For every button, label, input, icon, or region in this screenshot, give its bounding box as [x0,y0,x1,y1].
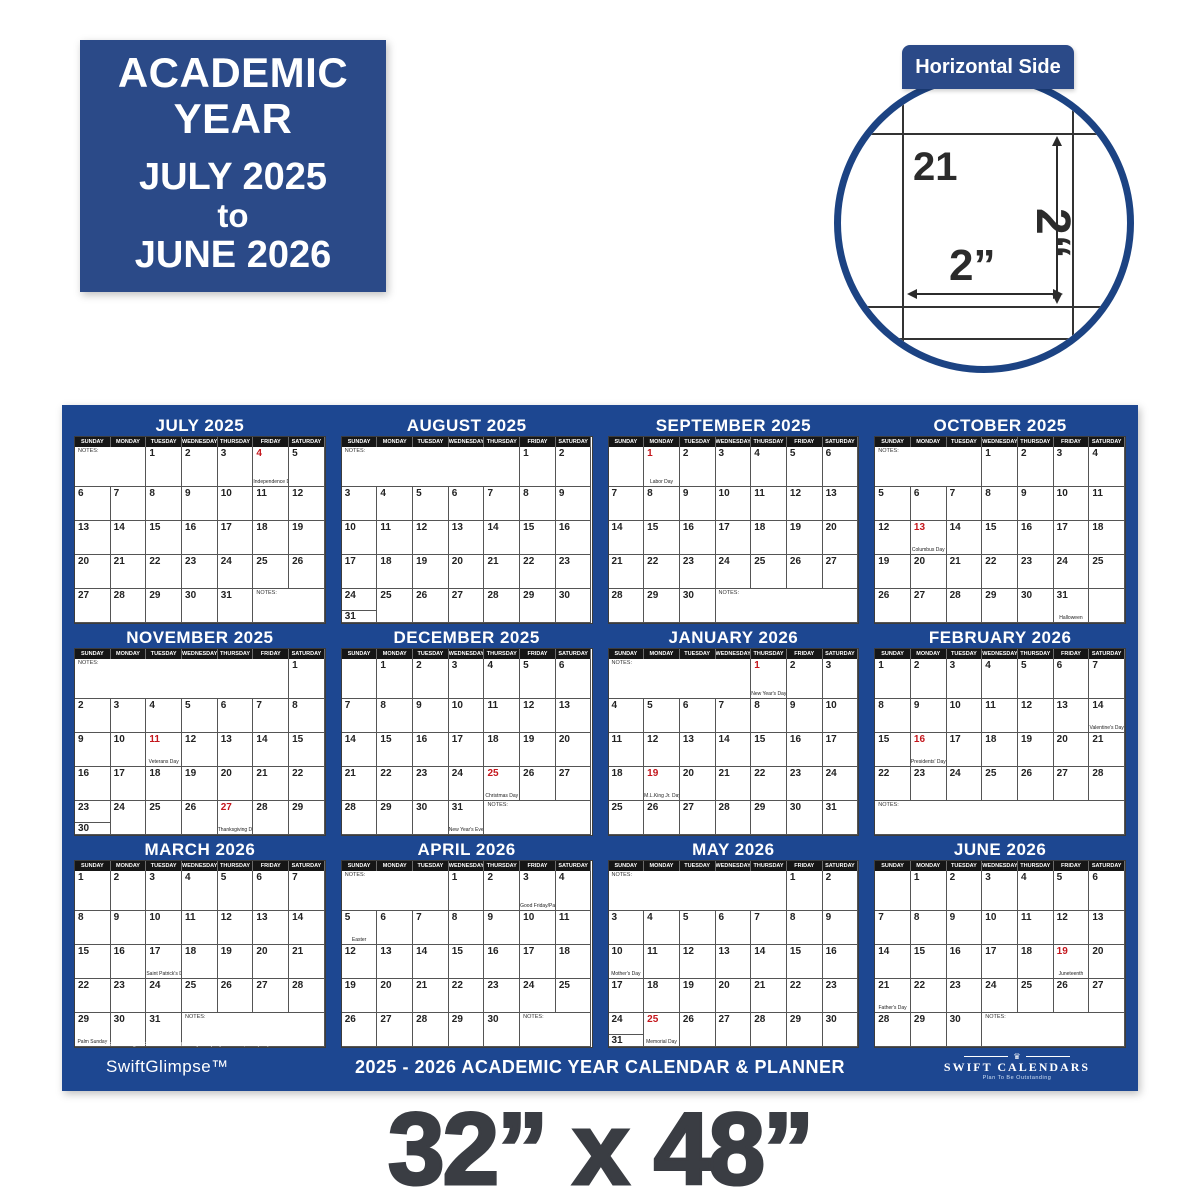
inset-width-label: 2” [949,241,995,290]
day-number: 24 [523,980,555,991]
day-cell: 20 [680,767,716,801]
day-header: FRIDAY [520,437,556,447]
day-cell: 21 [609,555,645,589]
day-number: 20 [914,556,946,567]
month-grid: SUNDAYMONDAYTUESDAYWEDNESDAYTHURSDAYFRID… [608,860,860,1048]
day-header: FRIDAY [253,437,289,447]
day-cell: 2 [182,447,218,487]
day-number: 15 [149,522,181,533]
day-cell: 6 [218,699,254,733]
day-number: 30 [950,1014,982,1025]
day-cell: 16 [75,767,111,801]
day-cell: 21 [1089,733,1125,767]
day-cell: 14 [289,911,325,945]
month-grid: SUNDAYMONDAYTUESDAYWEDNESDAYTHURSDAYFRID… [874,436,1126,624]
holiday-label: Halloween [1054,615,1089,621]
holiday-label: Labor Day [644,479,679,485]
day-number: 21 [487,556,519,567]
holiday-label: Easter [342,937,377,943]
day-number: 15 [878,734,910,745]
day-cell: 3 [146,871,182,911]
day-cell: 28 [1089,767,1125,801]
day-cell: 23 [947,979,983,1013]
day-number: 21 [345,768,377,779]
day-number: 4 [185,872,217,883]
day-header: THURSDAY [1018,437,1054,447]
day-header: THURSDAY [218,861,254,871]
day-number: 12 [683,946,715,957]
month-grid: SUNDAYMONDAYTUESDAYWEDNESDAYTHURSDAYFRID… [74,436,326,624]
day-cell: 11 [253,487,289,521]
day-cell: 16 [413,733,449,767]
day-number: 4 [256,448,288,459]
day-number: 18 [985,734,1017,745]
day-cell: 2 [1018,447,1054,487]
day-number: 5 [221,872,253,883]
day-number: 9 [950,912,982,923]
day-number: 27 [559,768,591,779]
day-header: WEDNESDAY [182,861,218,871]
month-grid: SUNDAYMONDAYTUESDAYWEDNESDAYTHURSDAYFRID… [341,648,593,836]
day-number: 20 [559,734,591,745]
notes-cell: NOTES: [875,447,982,487]
day-cell: 6 [1054,659,1090,699]
day-number: 17 [523,946,555,957]
day-cell: 18 [556,945,592,979]
day-cell: 19M.L.King Jr. Day [644,767,680,801]
day-number: 14 [1092,700,1124,711]
day-number: 7 [256,700,288,711]
day-number: 7 [487,488,519,499]
day-header: SUNDAY [875,861,911,871]
day-cell: 15 [751,733,787,767]
day-cell: 20 [911,555,947,589]
day-number: 25 [985,768,1017,779]
day-number: 27 [719,1014,751,1025]
day-cell: 13 [253,911,289,945]
day-cell: 15 [787,945,823,979]
day-cell: 14 [484,521,520,555]
day-number: 27 [452,590,484,601]
day-cell: 13 [449,521,485,555]
day-cell: 12 [342,945,378,979]
notes-label: NOTES: [523,1014,590,1020]
day-cell: 4 [484,659,520,699]
day-cell: 26 [787,555,823,589]
day-cell: 7 [289,871,325,911]
day-cell: 11 [1018,911,1054,945]
day-number: 3 [114,700,146,711]
day-number: 20 [719,980,751,991]
day-cell: 8 [751,699,787,733]
day-number: 24 [221,556,253,567]
holiday-label: M.L.King Jr. Day [644,793,679,799]
day-cell: 9 [556,487,592,521]
day-cell: 11 [556,911,592,945]
day-cell: 22 [911,979,947,1013]
month-title: DECEMBER 2025 [341,628,593,648]
day-cell: 13 [716,945,752,979]
day-number: 22 [380,768,412,779]
day-header: WEDNESDAY [182,649,218,659]
day-number: 27 [78,590,110,601]
day-number: 1 [452,872,484,883]
notes-cell: NOTES: [342,447,520,487]
day-cell: 3 [609,911,645,945]
day-cell: 7 [609,487,645,521]
day-cell: 4 [556,871,592,911]
day-cell: 16 [947,945,983,979]
day-cell: 28 [289,979,325,1013]
day-number: 20 [683,768,715,779]
day-number: 14 [487,522,519,533]
day-number: 29 [647,590,679,601]
day-cell: 5 [680,911,716,945]
day-number: 21 [612,556,644,567]
day-number: 20 [78,556,110,567]
day-cell: 30 [1018,589,1054,623]
day-number: 1 [914,872,946,883]
day-number: 1 [292,660,324,671]
day-cell: 8 [289,699,325,733]
day-number: 31 [149,1014,181,1025]
day-number: 31 [826,802,858,813]
day-header: TUESDAY [947,437,983,447]
day-number: 8 [985,488,1017,499]
day-number: 14 [719,734,751,745]
day-header: THURSDAY [751,437,787,447]
day-number: 6 [452,488,484,499]
day-number: 7 [114,488,146,499]
day-cell: 4 [377,487,413,521]
day-header: SUNDAY [609,649,645,659]
day-number: 10 [950,700,982,711]
day-cell: 10 [823,699,859,733]
day-number: 4 [149,700,181,711]
day-cell: 25 [982,767,1018,801]
day-cell: 11 [377,521,413,555]
day-cell: 29 [377,801,413,835]
day-cell: 26 [1054,979,1090,1013]
day-number: 13 [256,912,288,923]
month-title: JANUARY 2026 [608,628,860,648]
day-cell: 6 [253,871,289,911]
day-number: 26 [416,590,448,601]
day-header: TUESDAY [413,861,449,871]
day-cell: 8 [644,487,680,521]
day-number: 6 [256,872,288,883]
day-cell: 4 [146,699,182,733]
month-february-2026: FEBRUARY 2026SUNDAYMONDAYTUESDAYWEDNESDA… [874,628,1126,836]
day-cell: 13 [556,699,592,733]
holiday-label: Presidents' Day [911,759,946,765]
holiday-label: New Year's Day [751,691,786,697]
day-number: 30 [487,1014,519,1025]
day-cell: 28 [751,1013,787,1047]
day-number: 30 [416,802,448,813]
day-number: 9 [78,734,110,745]
day-cell: 15 [644,521,680,555]
month-grid: SUNDAYMONDAYTUESDAYWEDNESDAYTHURSDAYFRID… [874,648,1126,836]
day-number: 25 [149,802,181,813]
day-number: 25 [256,556,288,567]
day-cell: 10 [146,911,182,945]
empty-cell [342,659,378,699]
day-cell: 11 [182,911,218,945]
day-cell: 2431 [609,1013,645,1047]
day-cell: 16Presidents' Day [911,733,947,767]
day-number: 15 [78,946,110,957]
overflow-day: 31 [609,1034,644,1046]
day-cell: 2 [111,871,147,911]
day-number: 12 [790,488,822,499]
day-header: THURSDAY [218,649,254,659]
swift-calendars-name: SWIFT CALENDARS [922,1061,1112,1075]
day-number: 21 [114,556,146,567]
day-number: 7 [719,700,751,711]
day-number: 9 [487,912,519,923]
day-number: 21 [719,768,751,779]
day-header: TUESDAY [146,437,182,447]
day-cell: 13 [680,733,716,767]
day-number: 11 [985,700,1017,711]
day-number: 25 [185,980,217,991]
day-cell: 9 [111,911,147,945]
day-number: 2 [78,700,110,711]
day-cell: 6 [680,699,716,733]
day-header: THURSDAY [1018,861,1054,871]
day-number: 4 [380,488,412,499]
day-number: 20 [1092,946,1124,957]
day-number: 11 [149,734,181,745]
day-cell: 27 [680,801,716,835]
day-cell: 17 [982,945,1018,979]
day-cell: 13Columbus Day [911,521,947,555]
day-number: 27 [380,1014,412,1025]
day-header: THURSDAY [1018,649,1054,659]
day-cell: 14 [875,945,911,979]
holiday-label: New Year's Eve [449,827,484,833]
day-cell: 14Valentine's Day [1089,699,1125,733]
day-header: THURSDAY [484,437,520,447]
day-cell: 12 [413,521,449,555]
day-cell: 23 [413,767,449,801]
day-header: TUESDAY [146,861,182,871]
day-number: 7 [416,912,448,923]
day-cell: 30 [680,589,716,623]
day-cell: 16 [1018,521,1054,555]
day-cell: 14 [253,733,289,767]
day-cell: 27 [911,589,947,623]
day-header: WEDNESDAY [982,649,1018,659]
day-number: 4 [754,448,786,459]
day-cell: 7 [484,487,520,521]
day-cell: 17 [823,733,859,767]
day-cell: 30 [947,1013,983,1047]
day-cell: 16 [680,521,716,555]
day-number: 13 [380,946,412,957]
day-number: 27 [683,802,715,813]
day-header: TUESDAY [413,437,449,447]
day-header: FRIDAY [253,649,289,659]
day-number: 15 [985,522,1017,533]
day-cell: 10Mother's Day [609,945,645,979]
day-cell: 26 [182,801,218,835]
day-cell: 20 [1089,945,1125,979]
day-header: SATURDAY [1089,437,1125,447]
day-number: 16 [114,946,146,957]
day-number: 5 [416,488,448,499]
day-cell: 7 [342,699,378,733]
day-cell: 11 [1089,487,1125,521]
day-cell: 19 [218,945,254,979]
day-number: 1 [790,872,822,883]
day-cell: 5 [644,699,680,733]
day-number: 10 [719,488,751,499]
day-cell: 6 [75,487,111,521]
day-number: 16 [1021,522,1053,533]
holiday-label: Memorial Day [644,1039,679,1045]
day-cell: 15 [289,733,325,767]
month-grid: SUNDAYMONDAYTUESDAYWEDNESDAYTHURSDAYFRID… [608,436,860,624]
copyright-text: © 2024 All Rights Reserved - Reliable Wa… [104,1042,291,1048]
day-number: 24 [114,802,146,813]
day-number: 24 [345,590,377,601]
day-number: 30 [790,802,822,813]
day-cell: 22 [875,767,911,801]
day-number: 19 [221,946,253,957]
day-number: 3 [523,872,555,883]
day-number: 21 [292,946,324,957]
day-number: 8 [790,912,822,923]
day-cell: 22 [520,555,556,589]
day-cell: 10 [342,521,378,555]
day-number: 6 [78,488,110,499]
day-cell: 11 [982,699,1018,733]
day-cell: 10 [716,487,752,521]
day-cell: 3 [947,659,983,699]
day-cell: 23 [787,767,823,801]
notes-cell: NOTES: [875,801,1125,835]
day-number: 27 [1092,980,1124,991]
day-number: 2 [790,660,822,671]
day-number: 2 [487,872,519,883]
day-header: SUNDAY [609,437,645,447]
day-cell: 7 [716,699,752,733]
day-number: 18 [487,734,519,745]
day-number: 28 [878,1014,910,1025]
day-cell: 8 [377,699,413,733]
day-cell: 20 [1054,733,1090,767]
day-header: FRIDAY [787,861,823,871]
month-title: MAY 2026 [608,840,860,860]
day-cell: 29 [146,589,182,623]
day-cell: 29 [449,1013,485,1047]
day-header: SATURDAY [556,437,592,447]
day-header: SATURDAY [1089,861,1125,871]
month-october-2025: OCTOBER 2025SUNDAYMONDAYTUESDAYWEDNESDAY… [874,416,1126,624]
month-title: FEBRUARY 2026 [874,628,1126,648]
day-cell: 13 [75,521,111,555]
day-cell: 9 [75,733,111,767]
day-cell: 15 [520,521,556,555]
day-number: 17 [345,556,377,567]
day-cell: 29 [289,801,325,835]
day-number: 9 [826,912,858,923]
day-header: WEDNESDAY [716,437,752,447]
day-number: 12 [185,734,217,745]
day-cell: 20 [716,979,752,1013]
day-number: 18 [647,980,679,991]
day-number: 14 [416,946,448,957]
month-title: JUNE 2026 [874,840,1126,860]
day-number: 21 [950,556,982,567]
day-number: 8 [380,700,412,711]
day-cell: 22 [449,979,485,1013]
day-header: TUESDAY [680,649,716,659]
day-number: 28 [487,590,519,601]
day-cell: 21Father's Day [875,979,911,1013]
day-cell: 15 [911,945,947,979]
day-number: 24 [1057,556,1089,567]
day-header: SATURDAY [289,437,325,447]
day-number: 20 [256,946,288,957]
day-cell: 14 [751,945,787,979]
day-cell: 24 [982,979,1018,1013]
day-header: SATURDAY [823,861,859,871]
notes-label: NOTES: [345,448,519,454]
day-cell: 8 [787,911,823,945]
day-number: 12 [221,912,253,923]
day-header: MONDAY [911,437,947,447]
day-number: 23 [487,980,519,991]
day-number: 13 [559,700,591,711]
day-cell: 22 [377,767,413,801]
day-cell: 1 [75,871,111,911]
day-cell: 5 [218,871,254,911]
day-header: TUESDAY [146,649,182,659]
day-cell: 29 [520,589,556,623]
day-header: SUNDAY [342,437,378,447]
day-number: 8 [647,488,679,499]
day-number: 28 [950,590,982,601]
day-cell: 24 [146,979,182,1013]
day-cell: 9 [484,911,520,945]
day-cell: 16 [182,521,218,555]
day-cell: 28 [342,801,378,835]
day-number: 22 [78,980,110,991]
day-cell: 19 [875,555,911,589]
day-cell: 7 [751,911,787,945]
day-cell: 19 [413,555,449,589]
day-number: 20 [221,768,253,779]
day-cell: 21 [289,945,325,979]
day-header: MONDAY [111,649,147,659]
day-number: 5 [1057,872,1089,883]
day-number: 16 [683,522,715,533]
day-cell: 25 [556,979,592,1013]
day-number: 12 [1057,912,1089,923]
day-header: THURSDAY [751,649,787,659]
badge-line: YEAR [80,96,386,142]
holiday-label: Juneteenth [1054,971,1089,977]
day-header: WEDNESDAY [982,437,1018,447]
day-number: 23 [826,980,858,991]
day-header: WEDNESDAY [449,649,485,659]
day-number: 9 [683,488,715,499]
month-december-2025: DECEMBER 2025SUNDAYMONDAYTUESDAYWEDNESDA… [341,628,593,836]
day-cell: 3 [982,871,1018,911]
